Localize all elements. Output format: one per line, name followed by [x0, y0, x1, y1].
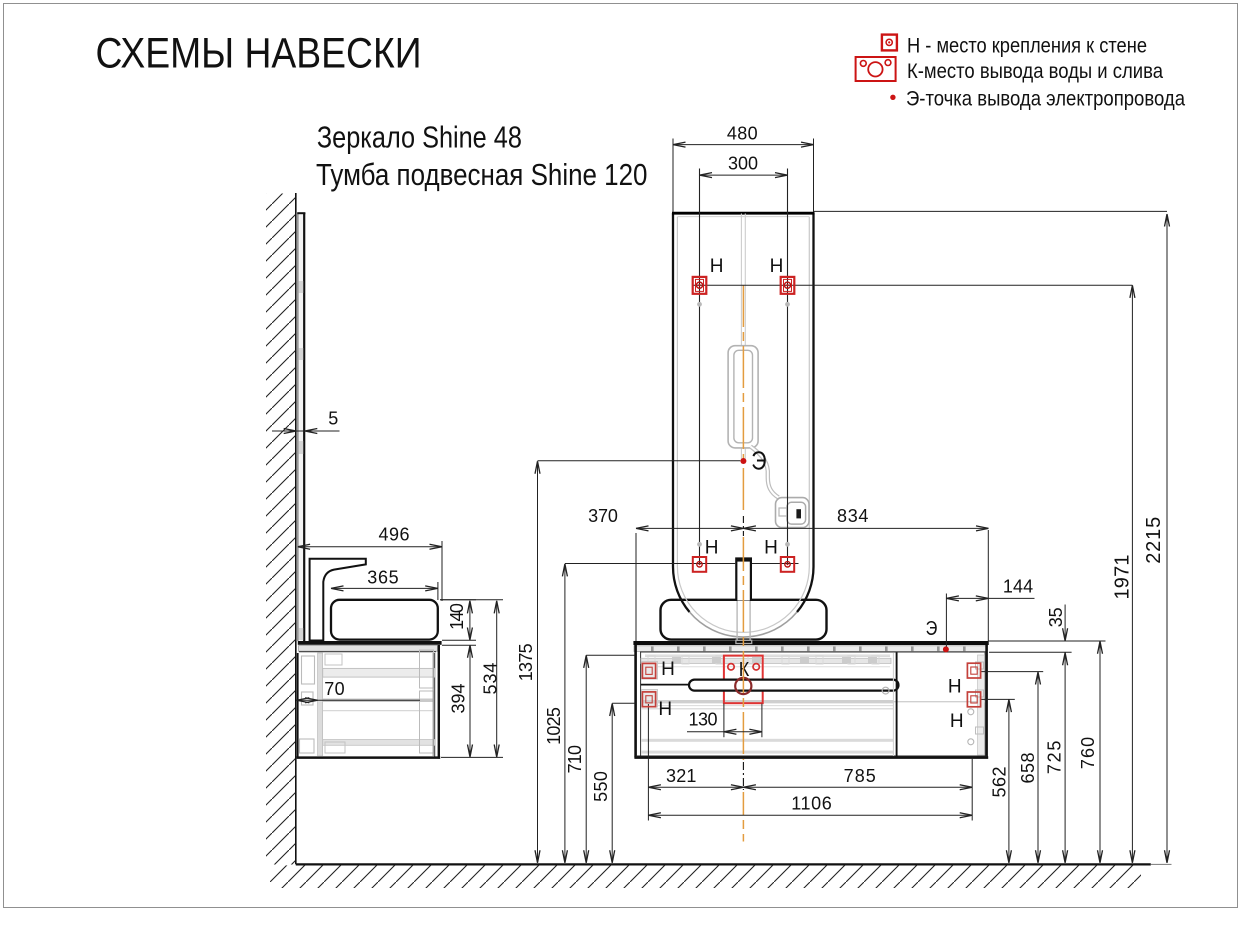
svg-text:70: 70 — [324, 679, 344, 699]
svg-text:365: 365 — [367, 567, 398, 587]
svg-text:2215: 2215 — [1143, 517, 1165, 564]
svg-text:Н: Н — [950, 711, 964, 732]
svg-text:480: 480 — [727, 124, 758, 144]
svg-text:35: 35 — [1046, 607, 1066, 627]
svg-text:760: 760 — [1078, 737, 1098, 769]
svg-text:Н: Н — [770, 256, 784, 277]
svg-text:К: К — [739, 659, 750, 681]
svg-text:Э: Э — [926, 618, 938, 640]
svg-text:К-место вывода воды и слива: К-место вывода воды и слива — [907, 60, 1163, 83]
svg-text:5: 5 — [328, 409, 338, 429]
svg-text:Э-точка вывода электропровода: Э-точка вывода электропровода — [906, 88, 1185, 111]
svg-text:534: 534 — [481, 663, 501, 695]
svg-text:496: 496 — [379, 524, 410, 544]
svg-text:Н: Н — [661, 659, 675, 680]
svg-text:1106: 1106 — [791, 794, 832, 814]
svg-text:Н: Н — [710, 256, 724, 277]
svg-text:130: 130 — [689, 709, 718, 729]
svg-text:Н: Н — [764, 538, 778, 559]
svg-text:710: 710 — [565, 745, 585, 773]
svg-text:Н - место крепления к стене: Н - место крепления к стене — [907, 35, 1147, 58]
svg-text:658: 658 — [1018, 753, 1038, 784]
svg-text:Н: Н — [948, 677, 962, 698]
svg-text:Зеркало Shine 48: Зеркало Shine 48 — [317, 121, 522, 155]
svg-text:1025: 1025 — [544, 707, 564, 745]
svg-text:144: 144 — [1003, 576, 1033, 596]
svg-text:725: 725 — [1045, 741, 1065, 775]
svg-text:Тумба подвесная Shine 120: Тумба подвесная Shine 120 — [316, 158, 648, 192]
svg-text:Э: Э — [751, 446, 766, 476]
svg-text:1375: 1375 — [516, 643, 536, 681]
svg-text:Н: Н — [705, 538, 719, 559]
svg-text:321: 321 — [666, 766, 696, 786]
svg-text:562: 562 — [990, 767, 1010, 798]
svg-text:300: 300 — [728, 153, 758, 173]
svg-text:140: 140 — [447, 603, 467, 630]
svg-text:785: 785 — [844, 766, 876, 786]
svg-text:550: 550 — [591, 771, 611, 802]
svg-text:394: 394 — [449, 683, 469, 713]
svg-text:Н: Н — [658, 699, 672, 720]
svg-text:834: 834 — [837, 506, 868, 526]
svg-text:СХЕМЫ НАВЕСКИ: СХЕМЫ НАВЕСКИ — [96, 30, 422, 78]
svg-text:370: 370 — [588, 506, 618, 526]
svg-text:1971: 1971 — [1111, 555, 1133, 600]
